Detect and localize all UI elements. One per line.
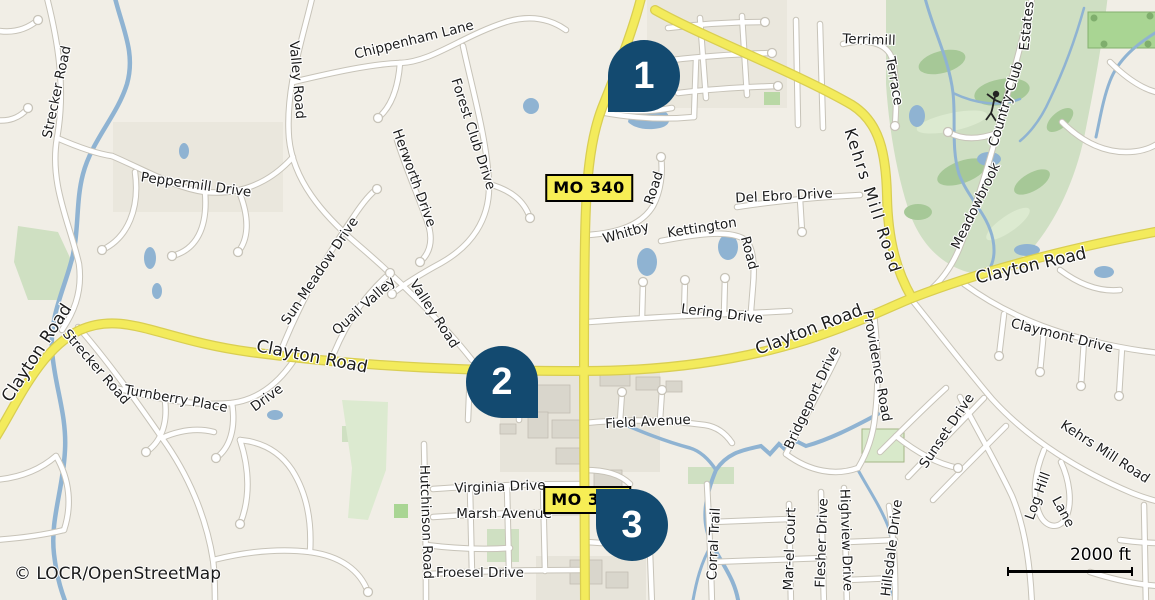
marker-number: 2 <box>491 361 512 404</box>
flesher-drive-label: Flesher Drive <box>812 498 831 588</box>
marker-number: 1 <box>633 55 654 98</box>
map-attribution: © LOCR/OpenStreetMap <box>14 564 221 584</box>
map-canvas[interactable]: Strecker RoadPeppermill DriveValley Road… <box>0 0 1155 600</box>
marsh-avenue-label: Marsh Avenue <box>456 506 552 522</box>
virginia-drive-label: Virginia Drive <box>454 477 546 496</box>
map-marker-1[interactable]: 1 <box>608 40 680 112</box>
mo-340-badge-north: MO 340 <box>545 174 633 202</box>
mar-el-court-label: Mar-el Court <box>781 507 800 590</box>
terrimill-terrace-1-label: Terrimill <box>842 31 896 49</box>
scale-line <box>1007 567 1133 576</box>
map-marker-3[interactable]: 3 <box>596 489 668 561</box>
froesel-drive-label: Froesel Drive <box>436 565 524 581</box>
scale-label: 2000 ft <box>1007 545 1133 565</box>
scale-bar: 2000 ft <box>1007 545 1133 576</box>
map-marker-2[interactable]: 2 <box>466 346 538 418</box>
marker-number: 3 <box>621 504 642 547</box>
